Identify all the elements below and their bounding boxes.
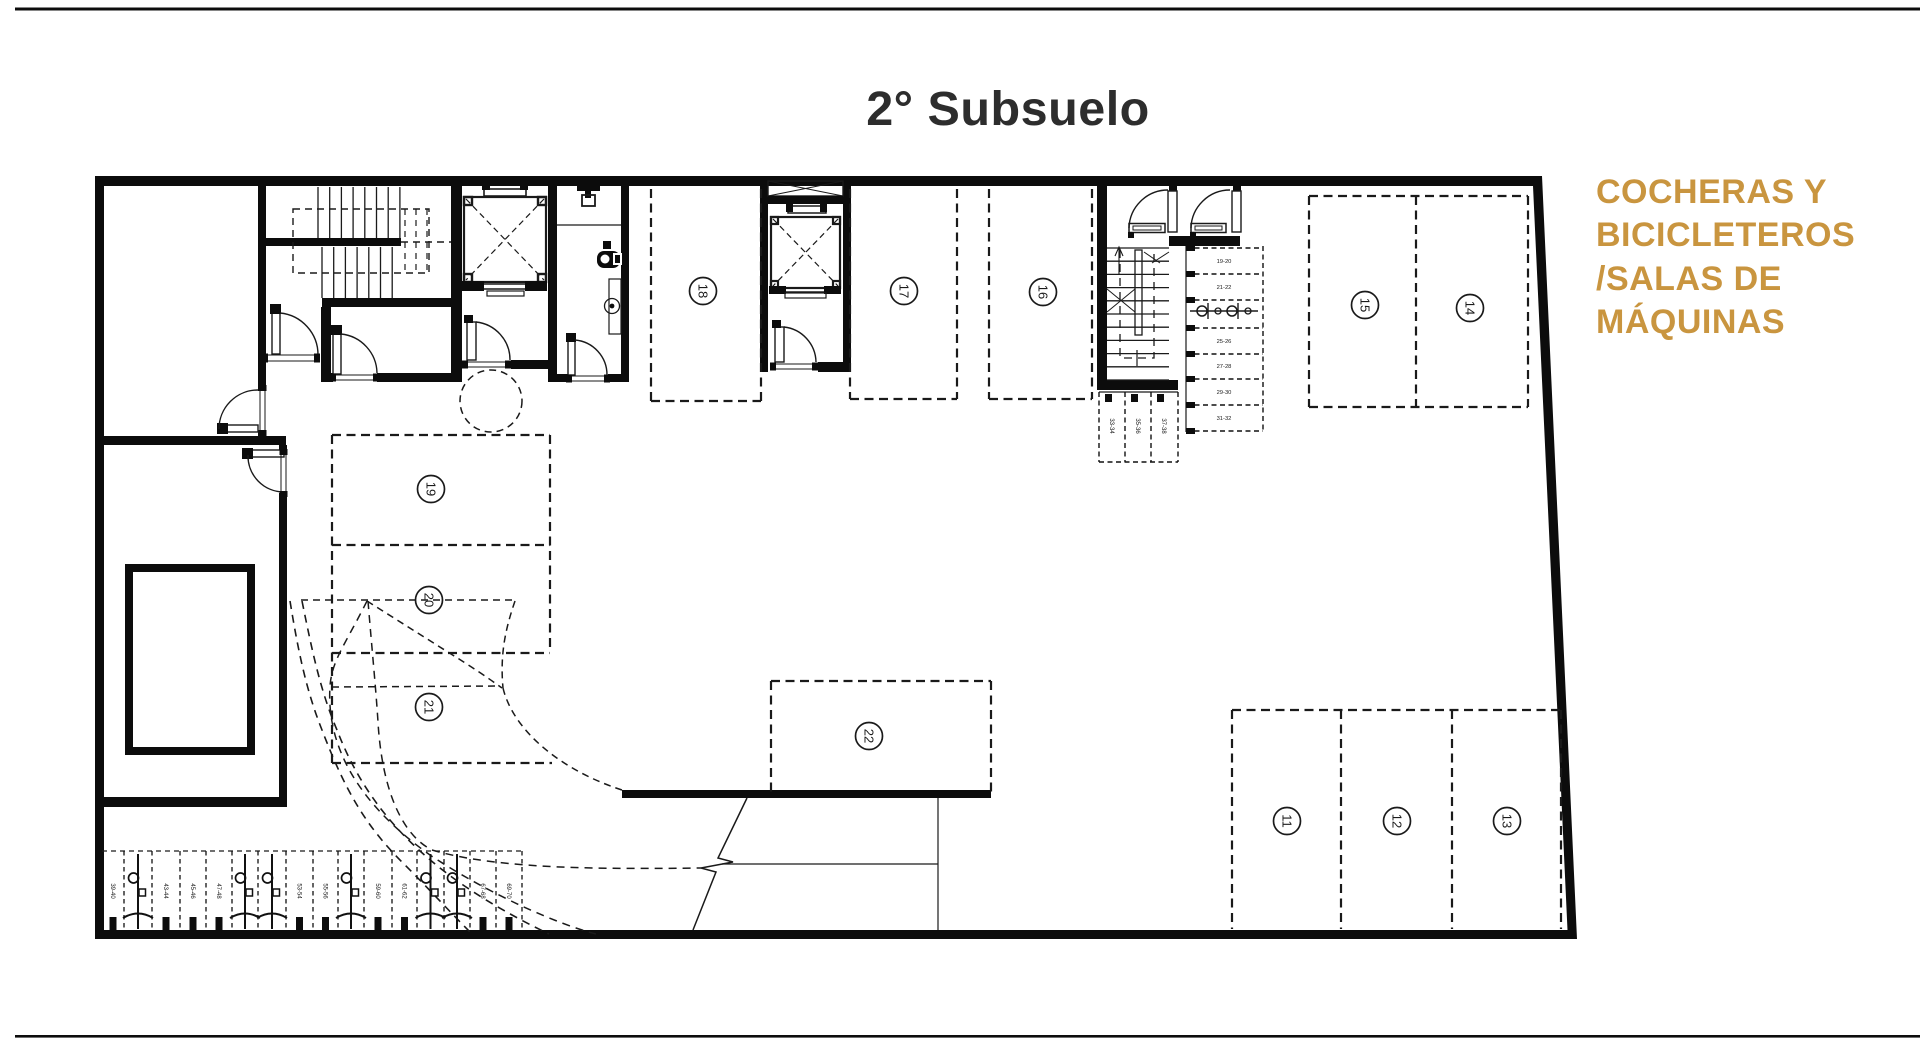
svg-text:BICICLETEROS: BICICLETEROS bbox=[1596, 216, 1855, 254]
svg-text:18: 18 bbox=[695, 284, 710, 298]
svg-text:67-68: 67-68 bbox=[479, 883, 485, 899]
svg-text:43-44: 43-44 bbox=[162, 883, 168, 899]
svg-text:35-36: 35-36 bbox=[1134, 418, 1140, 434]
svg-text:33-34: 33-34 bbox=[1108, 418, 1114, 434]
svg-text:COCHERAS Y: COCHERAS Y bbox=[1596, 173, 1827, 211]
svg-text:31-32: 31-32 bbox=[1217, 416, 1232, 422]
svg-text:69-70: 69-70 bbox=[505, 883, 511, 899]
svg-text:27-28: 27-28 bbox=[1217, 364, 1232, 370]
svg-text:19-20: 19-20 bbox=[1217, 259, 1232, 265]
svg-text:61-62: 61-62 bbox=[400, 883, 406, 899]
svg-text:21-22: 21-22 bbox=[1217, 285, 1232, 291]
svg-text:21: 21 bbox=[421, 700, 436, 714]
svg-text:53-54: 53-54 bbox=[295, 883, 301, 899]
svg-text:45-46: 45-46 bbox=[189, 883, 195, 899]
svg-text:/SALAS DE: /SALAS DE bbox=[1596, 260, 1782, 298]
svg-text:13: 13 bbox=[1499, 814, 1514, 828]
svg-text:16: 16 bbox=[1035, 285, 1050, 299]
svg-text:37-38: 37-38 bbox=[1160, 418, 1166, 434]
svg-text:19: 19 bbox=[423, 482, 438, 496]
svg-text:MÁQUINAS: MÁQUINAS bbox=[1596, 303, 1785, 341]
svg-text:17: 17 bbox=[896, 284, 911, 298]
svg-text:15: 15 bbox=[1357, 298, 1372, 312]
svg-text:59-60: 59-60 bbox=[374, 883, 380, 899]
svg-text:47-48: 47-48 bbox=[215, 883, 221, 899]
svg-text:2° Subsuelo: 2° Subsuelo bbox=[866, 82, 1150, 136]
svg-text:12: 12 bbox=[1389, 814, 1404, 828]
svg-text:14: 14 bbox=[1462, 301, 1477, 315]
svg-text:25-26: 25-26 bbox=[1217, 339, 1232, 345]
svg-text:39-40: 39-40 bbox=[109, 883, 115, 899]
svg-text:55-56: 55-56 bbox=[321, 883, 327, 899]
svg-text:22: 22 bbox=[861, 729, 876, 743]
svg-text:11: 11 bbox=[1279, 814, 1294, 828]
svg-text:29-30: 29-30 bbox=[1217, 390, 1232, 396]
